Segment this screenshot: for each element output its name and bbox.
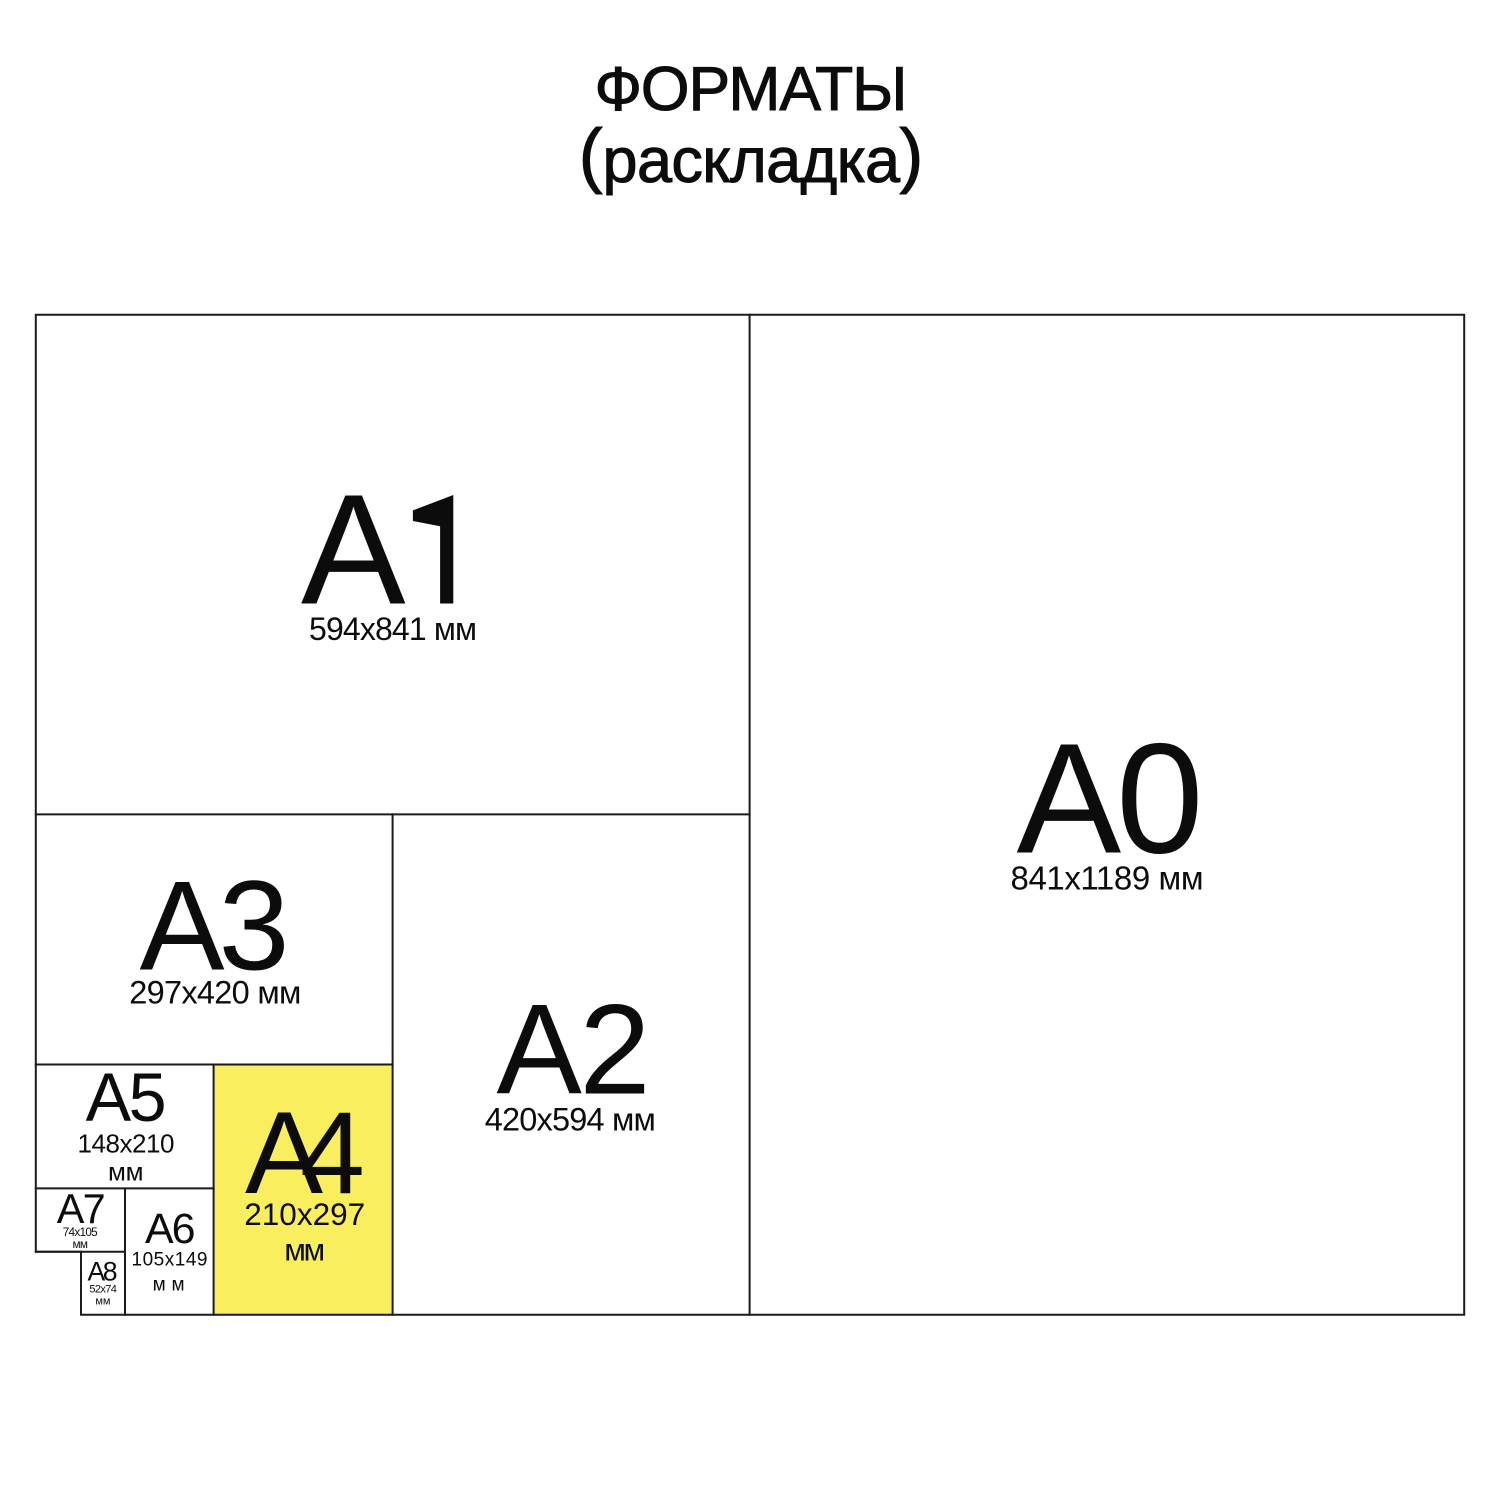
svg-text:420х594 мм: 420х594 мм: [485, 1102, 656, 1138]
svg-text:(раскладка): (раскладка): [579, 115, 924, 196]
svg-text:210х297: 210х297: [244, 1196, 365, 1232]
svg-text:594х841 мм: 594х841 мм: [309, 611, 477, 647]
svg-text:А2: А2: [497, 979, 651, 1122]
svg-text:297х420 мм: 297х420 мм: [129, 975, 301, 1011]
svg-text:52х74: 52х74: [89, 1284, 117, 1296]
svg-text:841х1189 мм: 841х1189 мм: [1011, 860, 1204, 897]
svg-text:А8: А8: [88, 1256, 118, 1286]
svg-text:мм: мм: [284, 1232, 325, 1268]
svg-text:А5: А5: [86, 1060, 167, 1136]
svg-text:мм: мм: [72, 1237, 88, 1251]
svg-text:А6: А6: [145, 1205, 196, 1253]
svg-text:мм: мм: [108, 1156, 144, 1186]
svg-text:мм: мм: [95, 1295, 110, 1307]
svg-text:148х210: 148х210: [78, 1128, 175, 1158]
svg-text:105х149: 105х149: [132, 1249, 208, 1270]
svg-text:ФОРМАТЫ: ФОРМАТЫ: [595, 54, 908, 124]
